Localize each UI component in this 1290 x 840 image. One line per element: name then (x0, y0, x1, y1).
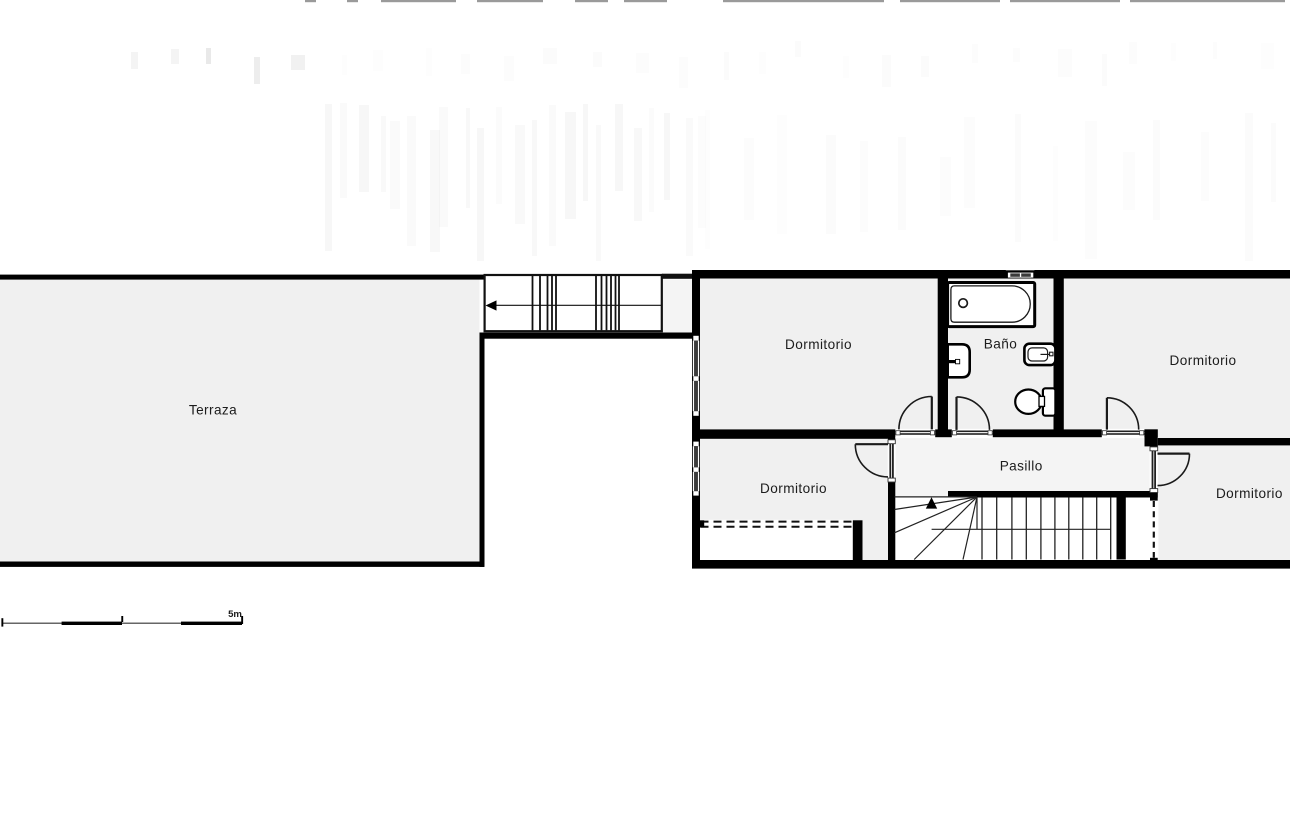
svg-text:Baño: Baño (984, 336, 1017, 351)
svg-text:Dormitorio: Dormitorio (1216, 486, 1283, 501)
svg-text:Dormitorio: Dormitorio (760, 481, 827, 496)
svg-text:5m: 5m (228, 609, 242, 620)
svg-text:Terraza: Terraza (189, 403, 237, 418)
svg-text:Dormitorio: Dormitorio (785, 337, 852, 352)
svg-text:Dormitorio: Dormitorio (1170, 353, 1237, 368)
svg-text:Pasillo: Pasillo (1000, 459, 1043, 474)
